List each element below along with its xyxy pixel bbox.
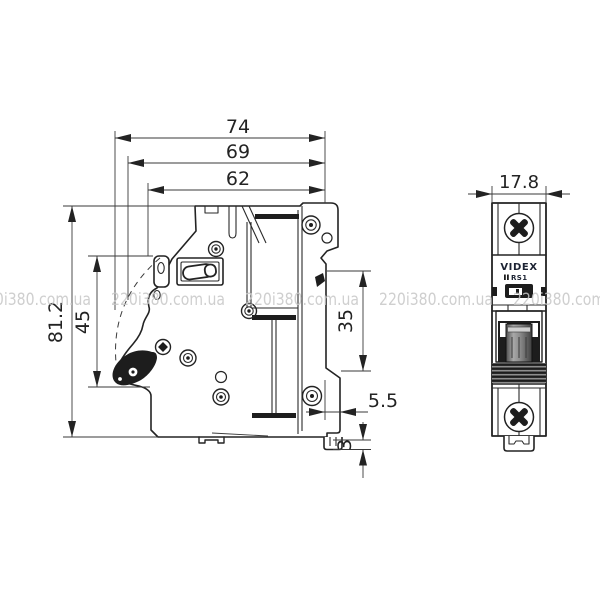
side-view [113, 203, 342, 450]
drawing-canvas: VIDEX RS1 [0, 0, 600, 600]
technical-drawing-page: VIDEX RS1 [0, 0, 600, 600]
housing-hole [216, 372, 227, 383]
front-view: VIDEX RS1 [492, 203, 546, 451]
flange-hole [322, 233, 332, 243]
pivot-rivet-icon [118, 377, 123, 382]
housing-seam-bar [255, 214, 299, 219]
svg-text:220i380.com.ua: 220i380.com.ua [513, 290, 600, 310]
model-mark [504, 275, 506, 281]
svg-text:35: 35 [335, 309, 357, 333]
brand-logo: VIDEX [500, 262, 537, 273]
svg-text:17.8: 17.8 [499, 172, 539, 193]
svg-text:220i380.com.ua: 220i380.com.ua [111, 290, 225, 310]
toggle-handle[interactable] [506, 324, 532, 362]
din-clip-pull-tab [199, 437, 224, 443]
rib-section [492, 363, 546, 383]
housing-seam-bar [252, 413, 296, 418]
svg-text:220i380.com.ua: 220i380.com.ua [0, 290, 91, 310]
model-mark [507, 275, 509, 281]
breaker-side-outline [117, 203, 340, 437]
dim-din-opening: 35 [327, 271, 371, 371]
housing-seam-bar [252, 315, 296, 320]
pivot-rivet-icon [131, 370, 134, 373]
model-label: RS1 [511, 274, 528, 282]
svg-text:62: 62 [226, 168, 250, 190]
svg-text:5.5: 5.5 [368, 390, 398, 412]
svg-text:220i380.com.ua: 220i380.com.ua [379, 290, 493, 310]
dim-module-width: 17.8 [468, 172, 570, 203]
svg-text:69: 69 [226, 141, 250, 163]
toggle-cap-stripe [508, 327, 531, 332]
svg-text:74: 74 [226, 116, 250, 138]
svg-text:3: 3 [334, 439, 356, 451]
svg-text:220i380.com.ua: 220i380.com.ua [245, 290, 359, 310]
svg-text:45: 45 [72, 310, 94, 334]
